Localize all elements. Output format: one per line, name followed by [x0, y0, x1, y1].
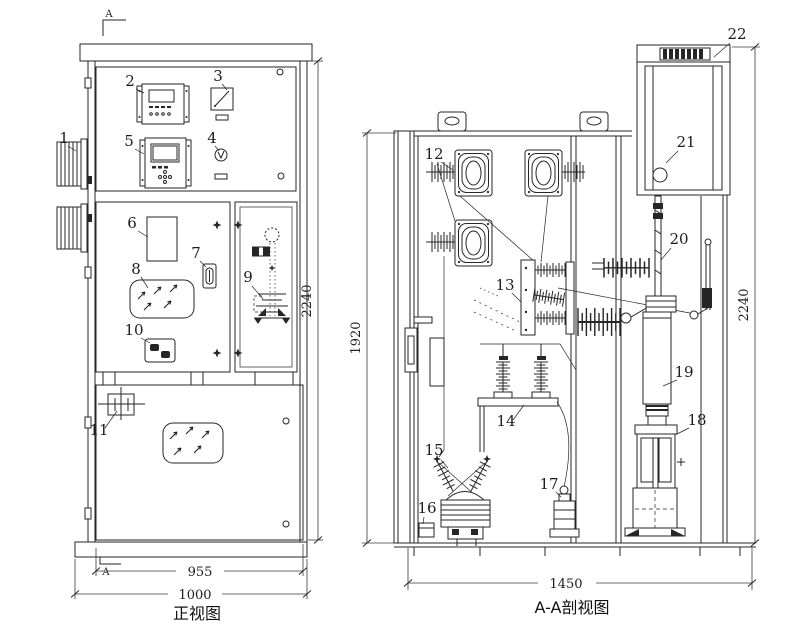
callout-19: 19	[674, 363, 693, 381]
callout-7: 7	[191, 244, 201, 262]
voltage-transformer	[432, 455, 493, 546]
panel-screws-top	[277, 69, 284, 179]
callout-17: 17	[539, 475, 558, 493]
control-switch	[215, 149, 227, 179]
dim-1920-label: 1920	[349, 321, 364, 354]
section-view-title: A-A剖视图	[535, 598, 610, 617]
primary-bushings	[426, 150, 585, 457]
nameplate	[147, 217, 177, 261]
callout-11: 11	[89, 421, 108, 439]
dim-1450-label: 1450	[549, 577, 582, 592]
front-view-title: 正视图	[173, 604, 221, 623]
middle-right-panel	[235, 202, 297, 372]
callout-8: 8	[131, 260, 141, 278]
load-switch	[474, 260, 574, 335]
section-marker-bottom-label: A	[101, 567, 110, 578]
dim-2240-section-label: 2240	[737, 288, 752, 321]
insulated-operating-rod	[646, 196, 676, 312]
callout-18: 18	[687, 411, 706, 429]
drawing-canvas: A A	[0, 0, 787, 627]
lifting-lugs	[438, 112, 608, 131]
operation-hole	[98, 387, 145, 420]
panel-meter	[211, 88, 233, 120]
section-cut-marker-top	[103, 20, 126, 36]
observation-window-lower	[163, 423, 223, 463]
callout-5: 5	[124, 132, 134, 150]
callout-14: 14	[496, 412, 515, 430]
panel-screws-lower	[283, 418, 289, 527]
protection-relay-upper	[137, 84, 189, 124]
dim-2240-front-label: 2240	[300, 284, 315, 317]
callout-16: 16	[417, 499, 436, 517]
callout-4: 4	[207, 129, 217, 147]
dim-1000-label: 1000	[178, 588, 211, 603]
engineering-drawing: A A	[0, 0, 787, 627]
rear-vent-box	[637, 45, 730, 195]
front-view: A A	[57, 9, 323, 623]
busbar-support	[478, 344, 576, 487]
side-busbar-bushings	[57, 139, 92, 252]
callout-21: 21	[676, 133, 695, 151]
callout-15: 15	[424, 441, 443, 459]
compartment-tabs	[103, 372, 293, 385]
front-callout-leaders	[68, 84, 263, 428]
callout-6: 6	[127, 214, 137, 232]
ground-terminal-box	[419, 523, 434, 537]
current-transformer	[625, 416, 685, 536]
callout-22: 22	[727, 25, 746, 43]
callout-2: 2	[125, 72, 135, 90]
observation-window-upper	[130, 280, 194, 318]
callout-13: 13	[495, 276, 514, 294]
section-marker-top-label: A	[104, 9, 113, 20]
callout-1: 1	[59, 129, 69, 147]
callout-20: 20	[669, 230, 688, 248]
surge-arrester	[550, 486, 579, 537]
section-view: 1920 1450 2240 A-A剖视图 12 13 14 15 16 17 …	[349, 25, 760, 617]
section-dim-1920	[362, 130, 396, 547]
callout-10: 10	[124, 321, 143, 339]
callout-12: 12	[424, 145, 443, 163]
callout-9: 9	[243, 268, 253, 286]
interlock-mechanism	[252, 228, 290, 324]
protection-relay-lower	[140, 138, 191, 188]
callout-3: 3	[213, 67, 223, 85]
dim-955-label: 955	[188, 565, 213, 580]
cable-duct	[643, 312, 671, 416]
door-handle	[203, 264, 216, 288]
panel-bolts-diamond	[213, 221, 243, 358]
